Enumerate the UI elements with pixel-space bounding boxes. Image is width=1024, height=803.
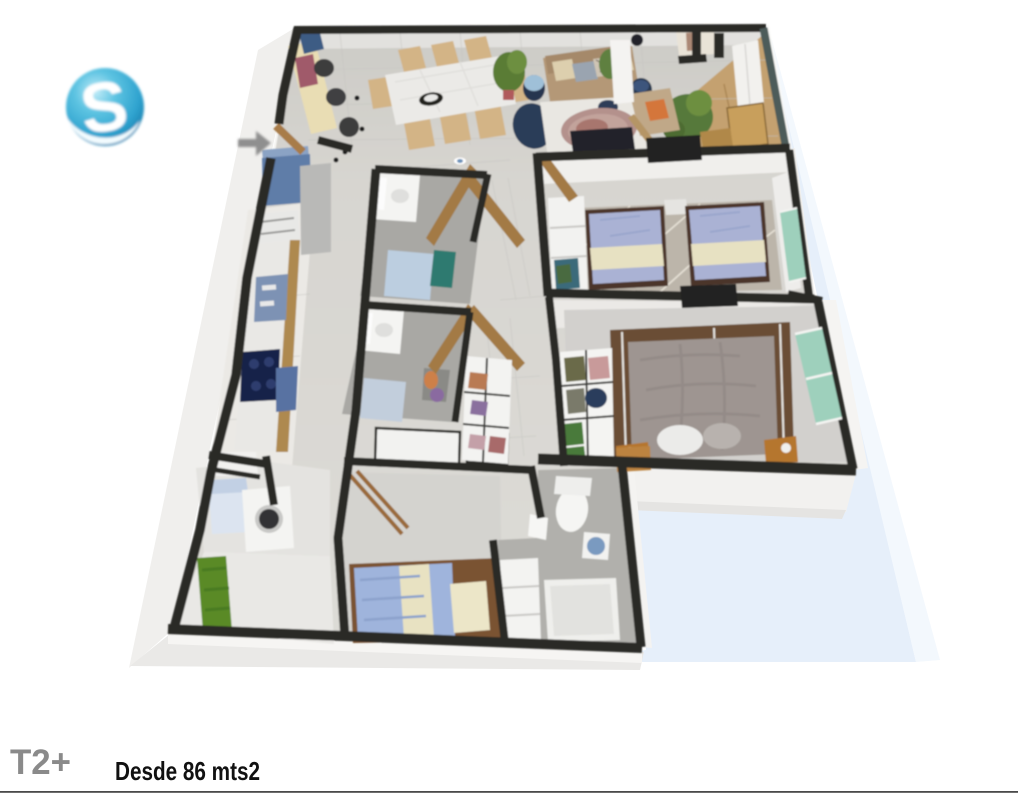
svg-text:T2+: T2+ (10, 743, 71, 782)
svg-text:Desde 86 mts2: Desde 86 mts2 (115, 756, 260, 786)
